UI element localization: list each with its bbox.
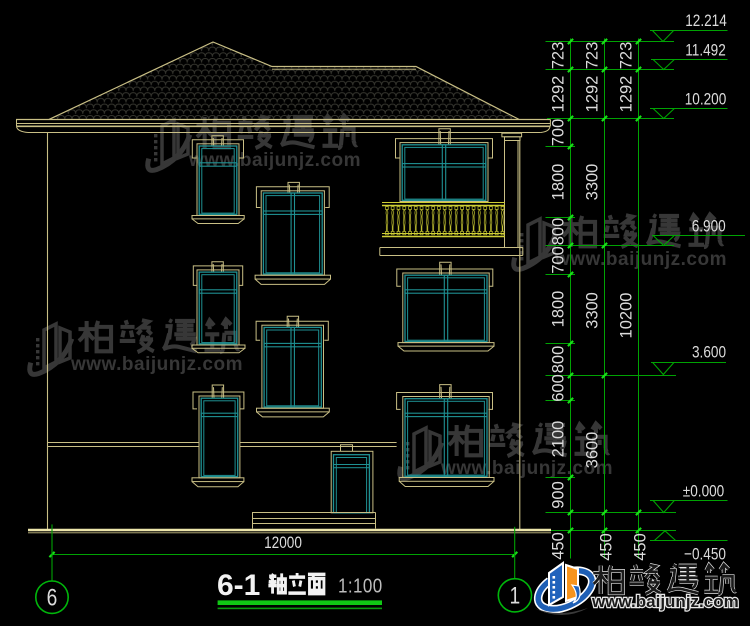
svg-text:1800: 1800 bbox=[550, 164, 568, 201]
svg-text:±0.000: ±0.000 bbox=[683, 482, 724, 501]
svg-text:www.baijunjz.com: www.baijunjz.com bbox=[591, 592, 739, 611]
svg-text:11.492: 11.492 bbox=[685, 41, 726, 60]
svg-text:1800: 1800 bbox=[550, 291, 568, 328]
svg-text:1292: 1292 bbox=[618, 76, 636, 113]
svg-text:12.214: 12.214 bbox=[685, 12, 727, 31]
svg-text:1292: 1292 bbox=[550, 76, 568, 113]
svg-text:700: 700 bbox=[550, 246, 568, 274]
svg-text:600: 600 bbox=[550, 374, 568, 402]
svg-text:6: 6 bbox=[47, 583, 58, 611]
svg-text:−0.450: −0.450 bbox=[684, 545, 726, 564]
svg-text:3300: 3300 bbox=[584, 292, 602, 329]
svg-text:723: 723 bbox=[618, 42, 636, 70]
svg-text:www.baijunjz.com: www.baijunjz.com bbox=[554, 249, 727, 270]
svg-text:1:100: 1:100 bbox=[338, 574, 383, 597]
svg-text:800: 800 bbox=[550, 346, 568, 374]
svg-text:6.900: 6.900 bbox=[692, 217, 726, 236]
svg-text:1: 1 bbox=[510, 581, 521, 609]
svg-text:2100: 2100 bbox=[550, 421, 568, 458]
svg-text:12000: 12000 bbox=[264, 534, 302, 553]
svg-text:10200: 10200 bbox=[618, 293, 636, 339]
svg-text:723: 723 bbox=[550, 42, 568, 70]
svg-text:3300: 3300 bbox=[584, 164, 602, 201]
svg-text:3600: 3600 bbox=[584, 432, 602, 469]
svg-text:450: 450 bbox=[598, 533, 616, 561]
svg-text:723: 723 bbox=[584, 42, 602, 70]
svg-text:www.baijunjz.com: www.baijunjz.com bbox=[188, 150, 361, 171]
svg-text:6-1: 6-1 bbox=[217, 569, 260, 602]
svg-text:800: 800 bbox=[550, 218, 568, 246]
svg-text:700: 700 bbox=[550, 119, 568, 147]
svg-text:www.baijunjz.com: www.baijunjz.com bbox=[70, 354, 243, 375]
svg-text:10.200: 10.200 bbox=[685, 90, 727, 109]
svg-text:1292: 1292 bbox=[584, 76, 602, 113]
svg-text:900: 900 bbox=[550, 481, 568, 509]
svg-text:3.600: 3.600 bbox=[692, 343, 726, 362]
svg-text:450: 450 bbox=[632, 533, 650, 561]
svg-text:450: 450 bbox=[550, 532, 568, 560]
